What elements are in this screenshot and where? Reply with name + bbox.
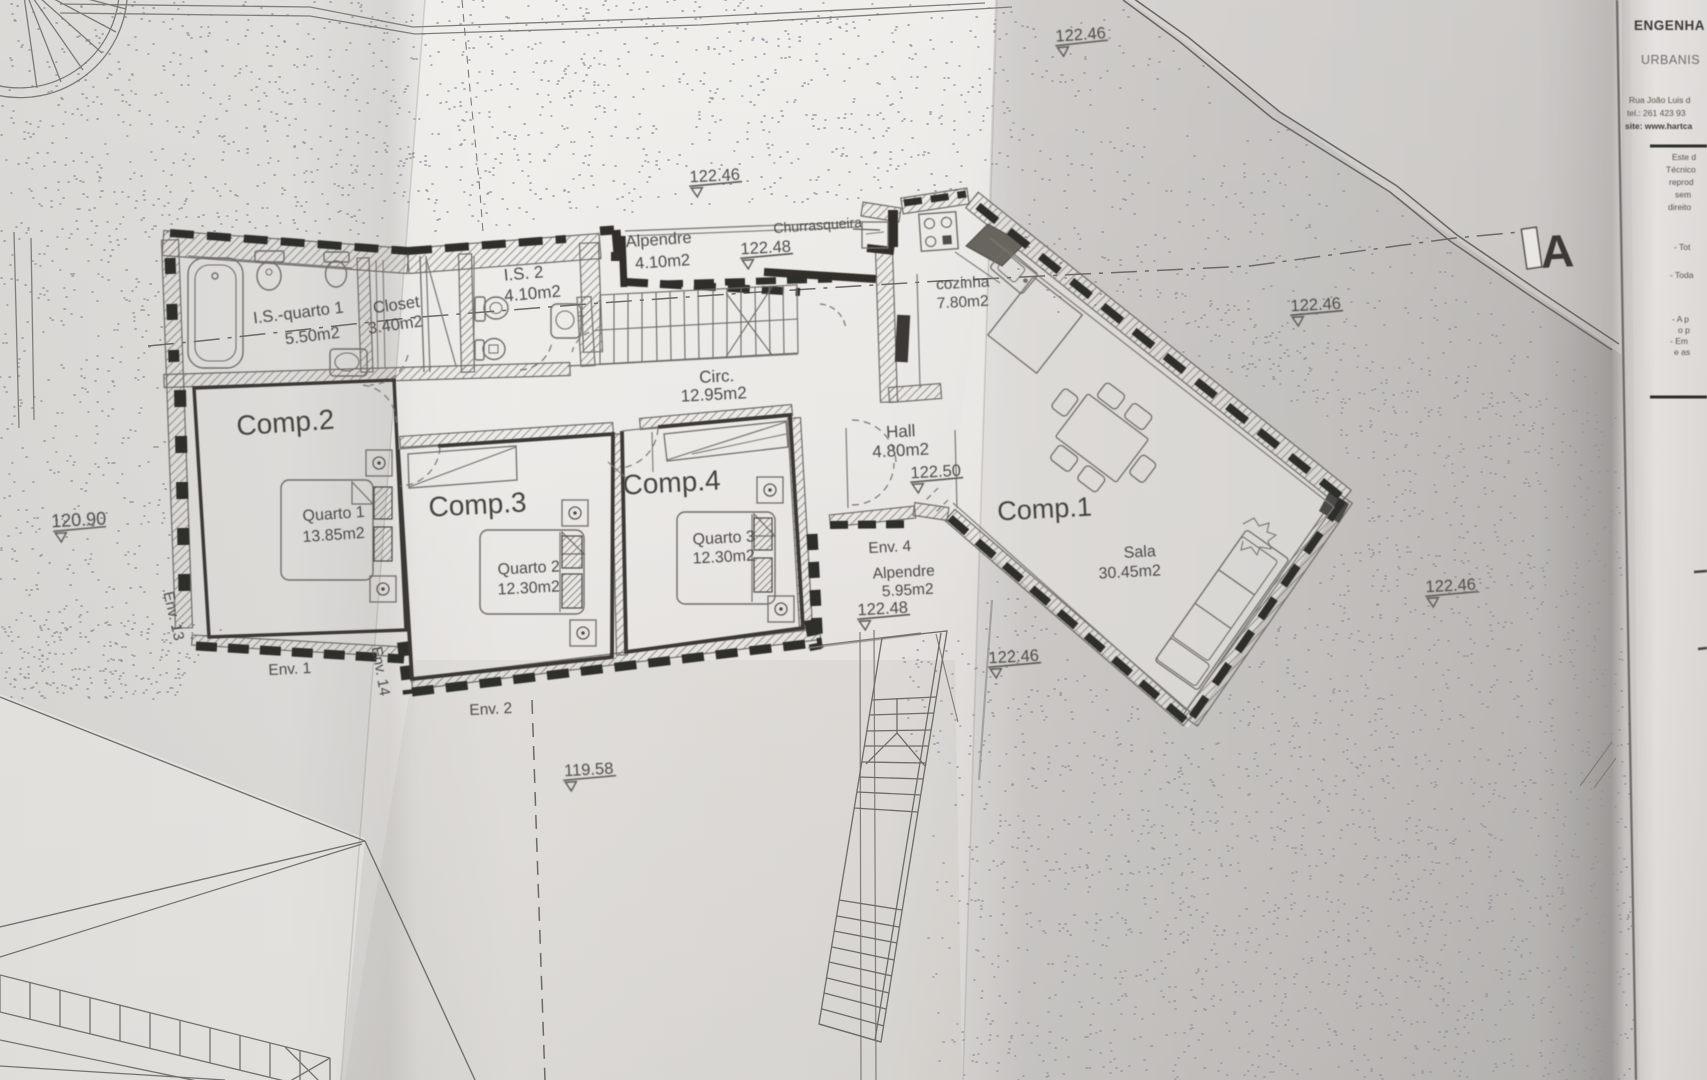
svg-text:Env. 4: Env. 4 xyxy=(868,538,912,557)
svg-text:- Toda: - Toda xyxy=(1670,270,1694,280)
svg-text:Técnico: Técnico xyxy=(1666,165,1696,175)
svg-text:site: www.hartca: site: www.hartca xyxy=(1625,121,1693,131)
svg-text:12.30m2: 12.30m2 xyxy=(497,578,560,598)
svg-text:12.95m2: 12.95m2 xyxy=(680,383,747,405)
svg-text:direito: direito xyxy=(1668,202,1691,212)
svg-text:- A p: - A p xyxy=(1672,314,1689,324)
svg-text:Sala: Sala xyxy=(1123,543,1156,562)
svg-text:- Tot: - Tot xyxy=(1674,242,1691,252)
svg-text:cozinha: cozinha xyxy=(936,274,991,294)
svg-text:30.45m2: 30.45m2 xyxy=(1098,562,1161,582)
svg-text:Quarto 2: Quarto 2 xyxy=(497,558,560,578)
svg-text:Env. 1: Env. 1 xyxy=(268,660,312,679)
svg-text:Este d: Este d xyxy=(1672,152,1696,162)
svg-text:- Em: - Em xyxy=(1670,336,1688,346)
svg-text:12.30m2: 12.30m2 xyxy=(692,547,755,567)
svg-text:e as: e as xyxy=(1674,347,1690,357)
svg-text:reprod: reprod xyxy=(1669,177,1694,187)
svg-text:Alpendre: Alpendre xyxy=(872,562,935,582)
svg-text:Comp.4: Comp.4 xyxy=(622,464,722,500)
svg-text:Env. 2: Env. 2 xyxy=(469,700,513,719)
svg-text:Hall: Hall xyxy=(886,421,916,442)
svg-text:sem: sem xyxy=(1675,190,1691,200)
svg-text:7.80m2: 7.80m2 xyxy=(937,293,990,313)
svg-text:4.10m2: 4.10m2 xyxy=(635,251,691,273)
svg-text:5.95m2: 5.95m2 xyxy=(882,581,935,601)
svg-text:o p: o p xyxy=(1678,325,1690,335)
svg-text:ENGENHA: ENGENHA xyxy=(1634,18,1705,33)
svg-text:4.80m2: 4.80m2 xyxy=(872,440,930,462)
svg-text:Quarto 3: Quarto 3 xyxy=(692,528,755,548)
svg-text:Comp.1: Comp.1 xyxy=(997,492,1093,527)
svg-text:URBANIS: URBANIS xyxy=(1641,53,1700,67)
svg-text:tel.: 261 423 93: tel.: 261 423 93 xyxy=(1627,108,1686,118)
svg-text:Comp.3: Comp.3 xyxy=(428,486,528,522)
svg-text:A: A xyxy=(1539,224,1575,278)
svg-text:Rua João Luis d: Rua João Luis d xyxy=(1629,95,1691,105)
svg-text:I.S. 2: I.S. 2 xyxy=(503,262,544,284)
